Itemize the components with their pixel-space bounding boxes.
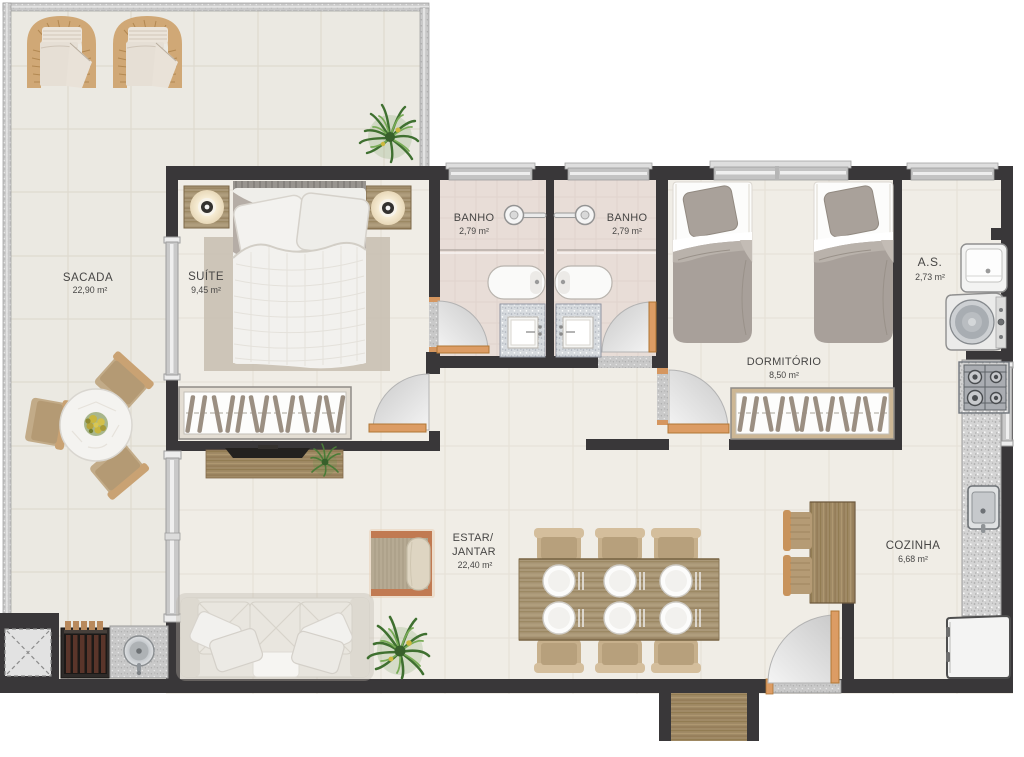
svg-text:22,90 m²: 22,90 m² xyxy=(73,285,108,295)
svg-text:ESTAR/: ESTAR/ xyxy=(453,532,494,544)
svg-text:2,73 m²: 2,73 m² xyxy=(915,272,945,282)
svg-text:2,79 m²: 2,79 m² xyxy=(459,226,489,236)
svg-text:BANHO: BANHO xyxy=(454,212,495,224)
svg-text:JANTAR: JANTAR xyxy=(452,546,496,558)
svg-text:A.S.: A.S. xyxy=(918,255,943,269)
svg-text:DORMITÓRIO: DORMITÓRIO xyxy=(747,355,822,368)
svg-text:22,40 m²: 22,40 m² xyxy=(458,560,493,570)
svg-text:BANHO: BANHO xyxy=(607,212,648,224)
svg-text:8,50 m²: 8,50 m² xyxy=(769,370,799,380)
svg-text:SACADA: SACADA xyxy=(63,272,113,284)
svg-text:6,68 m²: 6,68 m² xyxy=(898,554,928,564)
svg-text:SUÍTE: SUÍTE xyxy=(188,270,224,283)
svg-text:COZINHA: COZINHA xyxy=(886,540,941,552)
svg-text:2,79 m²: 2,79 m² xyxy=(612,226,642,236)
svg-text:9,45 m²: 9,45 m² xyxy=(191,285,221,295)
